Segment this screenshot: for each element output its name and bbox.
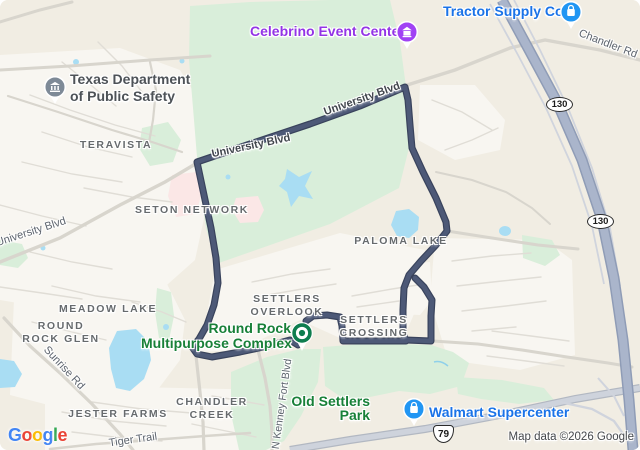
celebrino-pin[interactable] — [394, 20, 420, 52]
sh130-shield-bottom: 130 — [587, 214, 614, 229]
neighborhood-label-seton-network: SETON NETWORK — [122, 204, 262, 217]
poi-label-texas-dps[interactable]: Texas Departmentof Public Safety — [70, 71, 190, 104]
destination-pin[interactable] — [289, 321, 315, 353]
neighborhood-label-teravista: TERAVISTA — [46, 139, 186, 152]
poi-label-tractor-supply[interactable]: Tractor Supply Co — [443, 4, 564, 19]
poi-label-round-rock-multipurpose-complex[interactable]: Round RockMultipurpose Complex — [141, 321, 291, 350]
neighborhood-label-settlers-crossing: SETTLERSCROSSING — [304, 314, 444, 340]
sh130-shield-top: 130 — [546, 97, 573, 112]
map-canvas[interactable]: TERAVISTA SETON NETWORK PALOMA LAKE SETT… — [0, 0, 640, 450]
map-terrain — [0, 0, 640, 450]
neighborhood-label-paloma-lake: PALOMA LAKE — [331, 235, 471, 248]
google-logo[interactable]: Google — [8, 425, 67, 446]
poi-label-celebrino-event-center[interactable]: Celebrino Event Center — [250, 24, 405, 39]
neighborhood-label-meadow-lake: MEADOW LAKE — [38, 303, 178, 316]
walmart-pin[interactable] — [401, 397, 427, 429]
map-data-attribution: Map data ©2026 Google — [509, 431, 634, 443]
texas-dps-pin[interactable] — [42, 75, 68, 107]
tractor-supply-pin[interactable] — [558, 0, 584, 32]
poi-label-walmart-supercenter[interactable]: Walmart Supercenter — [429, 405, 569, 420]
neighborhood-label-round-rock-glen: ROUNDROCK GLEN — [0, 320, 131, 346]
poi-label-old-settlers-park: Old SettlersPark — [220, 395, 370, 422]
